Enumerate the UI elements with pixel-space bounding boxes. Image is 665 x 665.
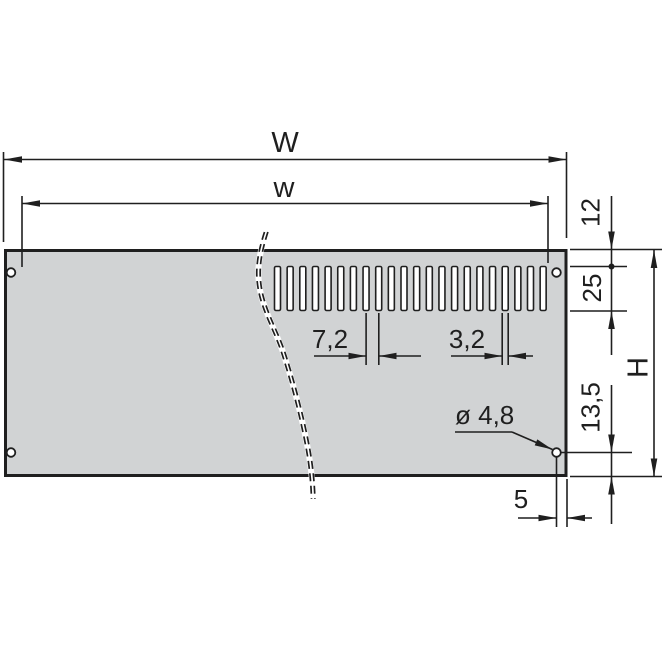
- vent-slot: [338, 267, 344, 311]
- vent-slot: [388, 267, 394, 311]
- vent-slot: [426, 267, 432, 311]
- arrowhead-left: [567, 515, 585, 521]
- arrowhead-right: [539, 515, 557, 521]
- panel-drawing: W w 12 25 13,5 H: [0, 0, 665, 665]
- arrowhead-up: [608, 311, 615, 329]
- vent-slot: [528, 267, 534, 311]
- vent-slot: [287, 267, 293, 311]
- vent-slot: [275, 267, 281, 311]
- dimension-overall-height: H: [623, 250, 658, 477]
- arrowhead-right: [530, 200, 548, 207]
- vent-slot: [414, 267, 420, 311]
- dimension-label-w: w: [273, 172, 296, 204]
- dimension-label-13-5: 13,5: [576, 382, 606, 433]
- dimension-label-12: 12: [576, 198, 606, 227]
- vent-slot: [464, 267, 470, 311]
- vent-slot: [300, 267, 306, 311]
- dimension-label-hole-diameter: ø 4,8: [455, 400, 514, 430]
- vent-slot: [515, 267, 521, 311]
- dimension-dot: [609, 264, 615, 270]
- arrowhead-down: [608, 435, 615, 453]
- dimension-label-H: H: [623, 357, 655, 378]
- arrowhead-up: [651, 250, 658, 268]
- vent-slot: [490, 267, 496, 311]
- dimension-label-3-2: 3,2: [449, 324, 485, 354]
- vent-slot: [312, 267, 318, 311]
- dimension-label-5: 5: [514, 484, 528, 514]
- arrowhead-left: [22, 200, 40, 207]
- mounting-hole-top-right: [552, 268, 561, 277]
- arrowhead-down: [651, 459, 658, 477]
- vent-slot: [477, 267, 483, 311]
- vent-slot: [350, 267, 356, 311]
- drawing-canvas: W w 12 25 13,5 H: [0, 0, 665, 665]
- arrowhead-right: [549, 156, 567, 163]
- mounting-hole-bottom-left: [7, 448, 16, 457]
- vent-slot: [502, 267, 508, 311]
- vent-slot: [452, 267, 458, 311]
- dimension-slot-height: 25: [577, 274, 615, 329]
- vent-slot: [540, 267, 546, 311]
- dimension-label-W: W: [271, 127, 299, 159]
- arrowhead-up: [608, 477, 615, 495]
- vent-slot: [363, 267, 369, 311]
- vent-slot: [376, 267, 382, 311]
- dimension-label-25: 25: [577, 274, 607, 303]
- arrowhead-left: [4, 156, 22, 163]
- dimension-label-7-2: 7,2: [312, 324, 348, 354]
- arrowhead-down: [608, 232, 615, 250]
- vent-slot: [401, 267, 407, 311]
- mounting-hole-top-left: [7, 268, 16, 277]
- vent-slot: [439, 267, 445, 311]
- mounting-hole-bottom-right: [552, 448, 561, 457]
- vent-slot: [325, 267, 331, 311]
